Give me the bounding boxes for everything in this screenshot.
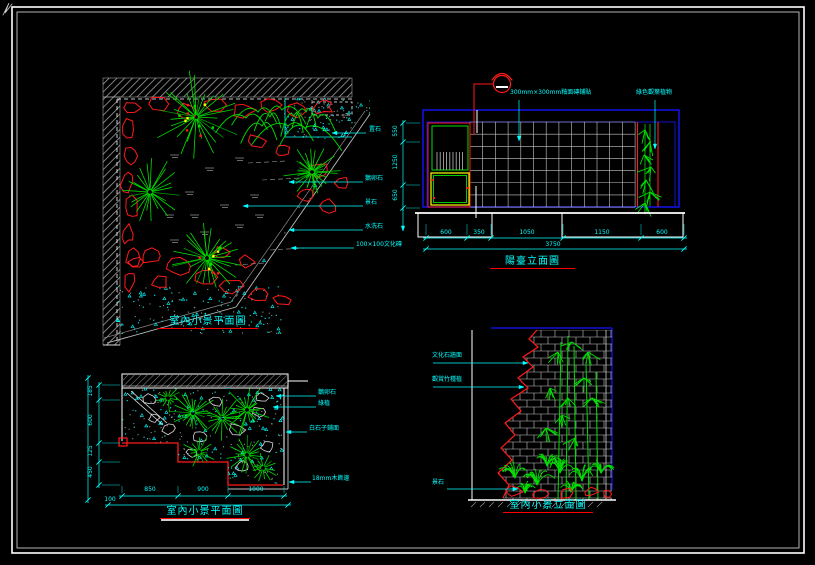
bl-dim-left-1: 600 (88, 408, 94, 432)
tr-dim-total: 3750 (536, 242, 570, 248)
tl-label-0: 置石 (369, 127, 381, 133)
tr-tile-label: 300mm×300mm釉面磚鋪貼 (510, 90, 591, 96)
br-title: 室內小景立面圖 (503, 501, 593, 513)
tr-title: 陽臺立面圖 (490, 257, 575, 269)
tr-dim-1: 350 (462, 230, 496, 236)
bl-dim-0: 850 (133, 487, 167, 493)
indoor-landscape-plan-drawing (103, 71, 373, 345)
tl-label-1: 鵝卵石 (365, 176, 383, 182)
tr-dim-4: 600 (645, 230, 679, 236)
cad-canvas (0, 0, 815, 565)
tl-label-3: 水洗石 (365, 224, 383, 230)
tr-dim-left-0: 550 (393, 119, 399, 143)
bl-dim-left-0: 185 (88, 379, 94, 403)
bl-label-3: 18mm木飾邊 (312, 476, 349, 482)
cad-drawing-sheet: 置石 鵝卵石 景石 水洗石 100×100文化磚 室內小景平面圖 300mm×3… (0, 0, 815, 565)
tr-dim-2: 1050 (510, 230, 544, 236)
bl-dim-2: 1000 (239, 487, 273, 493)
br-label-1: 觀賞竹種植 (432, 377, 462, 383)
tr-dim-left-1: 1250 (393, 150, 399, 174)
tl-label-2: 景石 (365, 200, 377, 206)
br-label-2: 景石 (432, 480, 444, 486)
bl-title: 室內小景平面圖 (160, 507, 250, 519)
bl-dim-1: 900 (186, 487, 220, 493)
tr-dim-0: 600 (429, 230, 463, 236)
tr-dim-left-2: 650 (393, 183, 399, 207)
bl-label-2: 白石子鋪面 (309, 426, 339, 432)
bl-label-1: 綠植 (318, 401, 330, 407)
bl-label-0: 鵝卵石 (318, 390, 336, 396)
balcony-elevation-drawing (400, 74, 687, 252)
tl-title: 室內小景平面圖 (158, 317, 258, 329)
br-label-0: 文化石牆面 (432, 353, 462, 359)
bl-dim-note: 100 (93, 497, 127, 503)
bl-dim-left-3: 450 (88, 460, 94, 484)
tl-label-4: 100×100文化磚 (356, 242, 402, 248)
tr-dim-3: 1150 (585, 230, 619, 236)
tr-plant-label: 綠色觀葉植物 (636, 90, 672, 96)
